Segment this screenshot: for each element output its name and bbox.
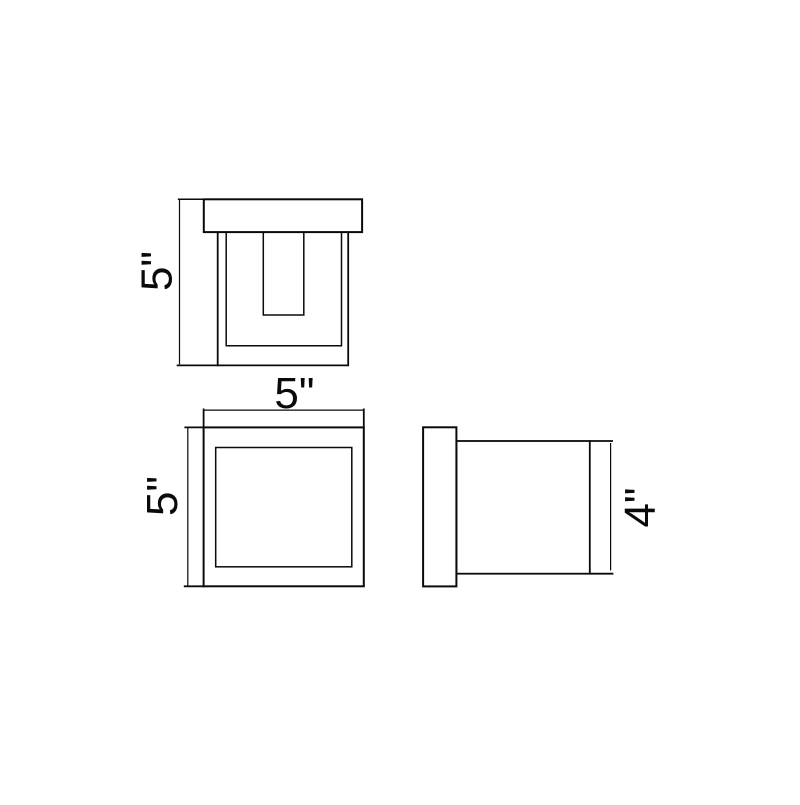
svg-text:4": 4" bbox=[616, 487, 665, 527]
svg-text:5": 5" bbox=[138, 476, 187, 516]
svg-text:5": 5" bbox=[133, 251, 182, 291]
svg-text:5": 5" bbox=[274, 369, 314, 418]
